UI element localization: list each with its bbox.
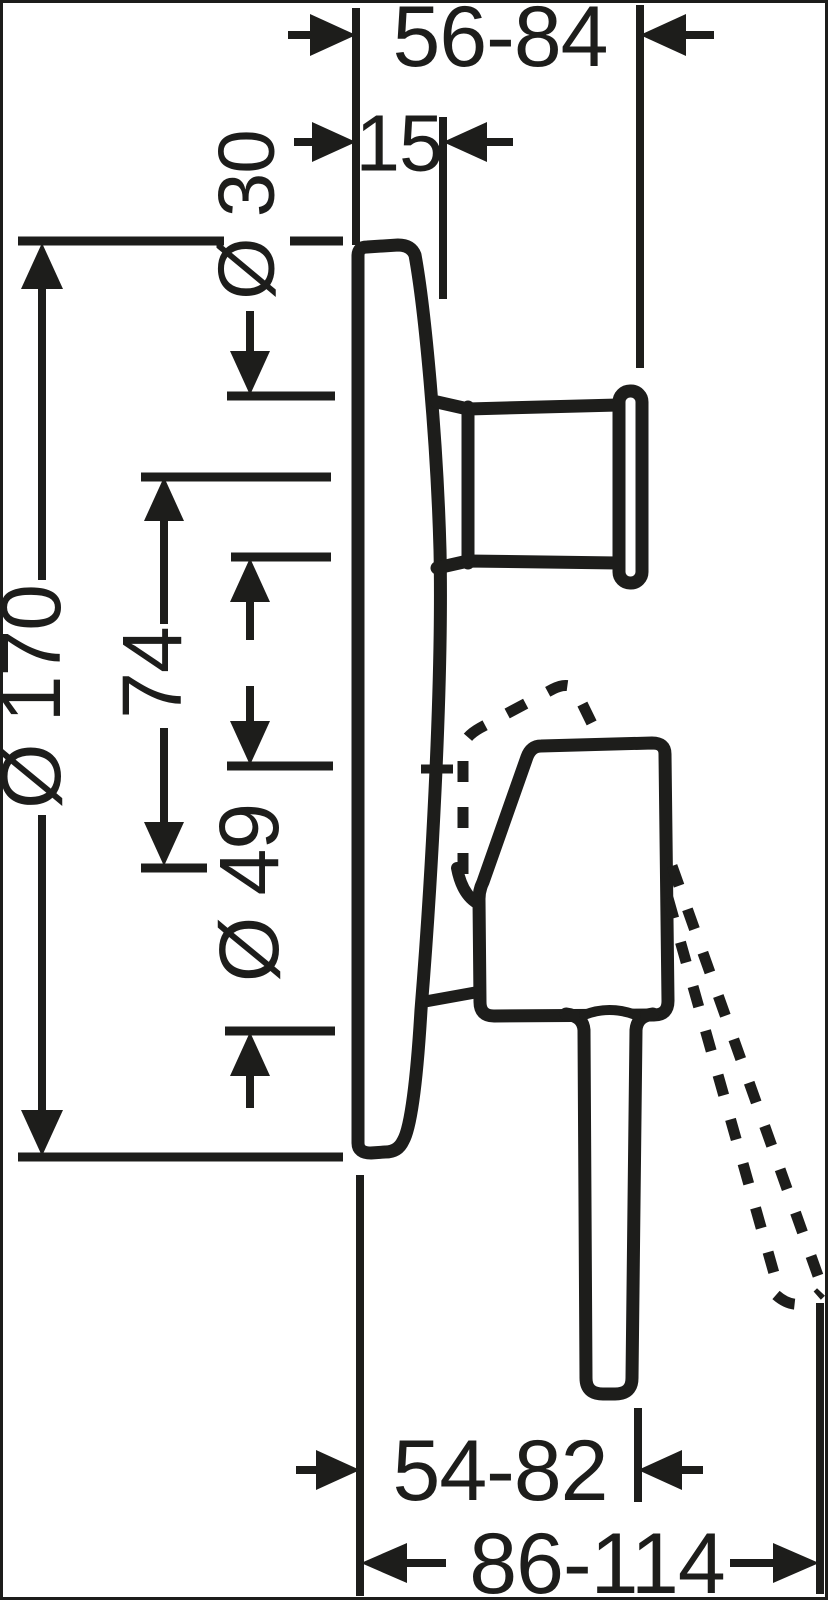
dim-label-dia30: Ø 30	[202, 130, 291, 299]
mixer-side-view-drawing: 56-84 15 Ø 170 74 Ø 30 Ø 49	[0, 0, 828, 1600]
valve-body	[358, 245, 668, 1394]
dim-label-dia49: Ø 49	[202, 804, 296, 982]
arrowhead-left-icon	[361, 1543, 407, 1583]
arrowhead-up-icon	[144, 477, 184, 521]
arrowhead-up-icon	[21, 243, 63, 289]
dim-74: 74	[105, 477, 199, 866]
arrowhead-right-icon	[773, 1543, 819, 1583]
alt-lever-end-cap	[776, 1292, 821, 1304]
dim-top-inner: 15	[294, 99, 513, 188]
arrowhead-down-icon	[144, 822, 184, 866]
arrowhead-up-icon	[230, 558, 270, 602]
dim-label-top-outer: 56-84	[393, 0, 608, 85]
arrowhead-up-icon	[230, 1032, 270, 1076]
alt-lever-left-edge	[668, 898, 779, 1291]
dim-d30: Ø 30	[202, 130, 291, 640]
arrowhead-down-icon	[21, 1110, 63, 1156]
dim-label-bottom-inner: 54-82	[393, 1423, 608, 1519]
arrowhead-left-icon	[640, 14, 686, 56]
handle-head	[479, 743, 668, 1016]
dim-d49: Ø 49	[202, 686, 296, 1108]
dim-top-outer: 56-84	[288, 0, 714, 85]
handle-neck-bottom	[428, 992, 478, 1001]
drawing-canvas: 56-84 15 Ø 170 74 Ø 30 Ø 49	[0, 0, 828, 1600]
dim-bottom-outer: 86-114	[361, 1516, 819, 1600]
escutcheon-plate	[358, 245, 440, 1153]
arrowhead-right-icon	[312, 122, 356, 162]
lever-rod	[566, 1014, 653, 1394]
dim-label-dia170: Ø 170	[0, 585, 78, 809]
dim-plate-diameter: Ø 170	[0, 243, 78, 1156]
arrowhead-right-icon	[310, 14, 356, 56]
lever-rod-shoulder	[584, 1010, 636, 1015]
arrowhead-right-icon	[316, 1450, 360, 1490]
dim-label-top-inner: 15	[356, 99, 443, 188]
alt-lever-right-edge	[672, 866, 822, 1287]
arrowhead-down-icon	[230, 351, 270, 395]
arrowhead-left-icon	[638, 1450, 682, 1490]
dim-label-74: 74	[105, 627, 199, 718]
arrowhead-left-icon	[443, 122, 487, 162]
arrowhead-down-icon	[230, 721, 270, 765]
dim-label-bottom-outer: 86-114	[469, 1516, 724, 1600]
stem-flange	[619, 391, 642, 583]
